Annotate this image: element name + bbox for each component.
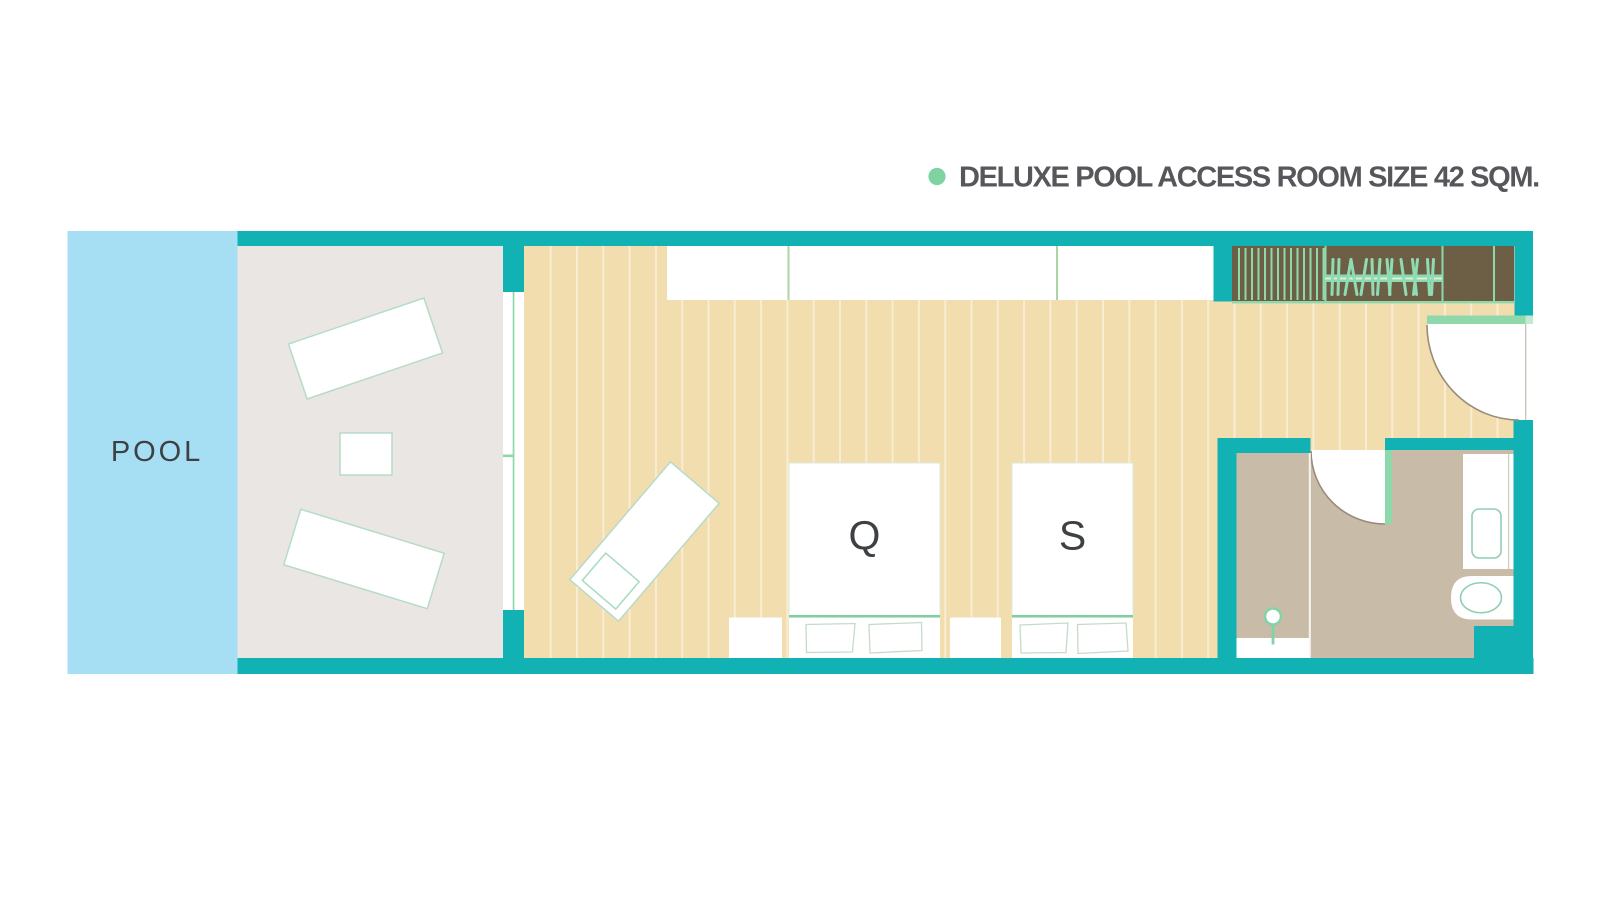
svg-text:S: S [1059,513,1086,559]
svg-text:Q: Q [849,513,881,559]
svg-text:DELUXE POOL ACCESS ROOM SIZE 4: DELUXE POOL ACCESS ROOM SIZE 42 SQM. [959,162,1539,194]
svg-text:POOL: POOL [111,436,203,468]
